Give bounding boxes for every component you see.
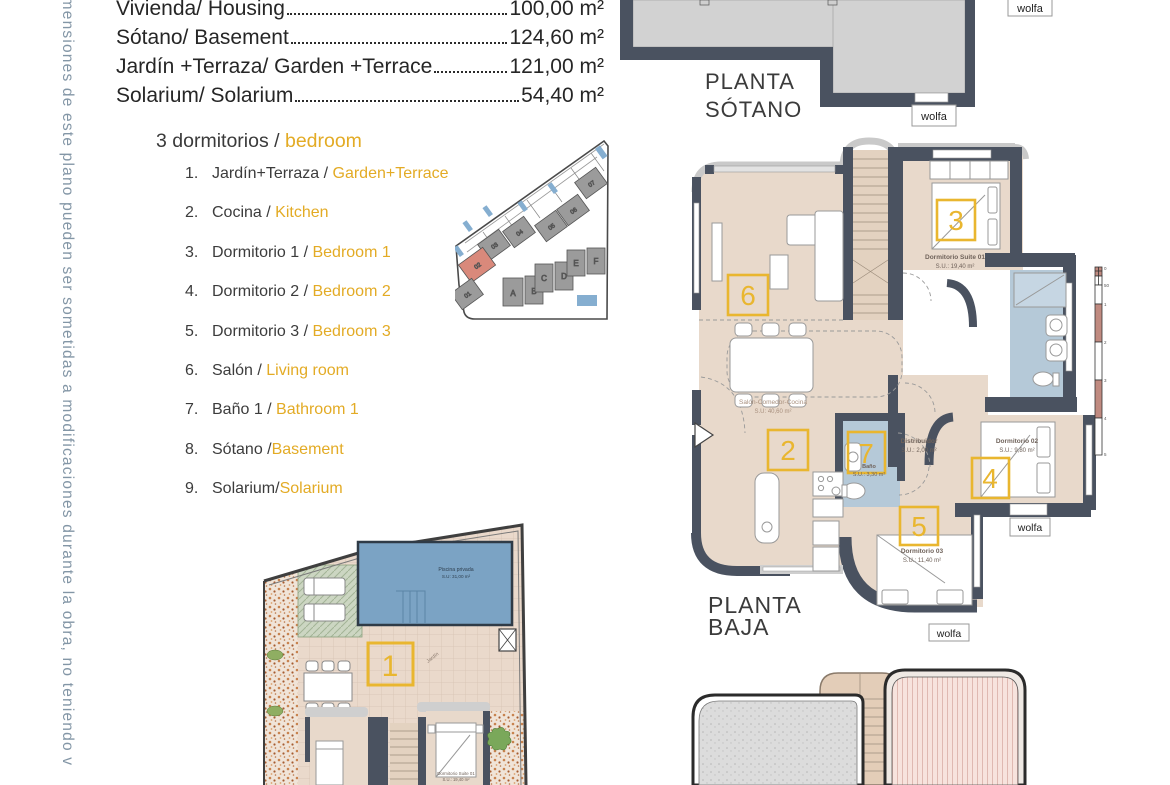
house-label: C xyxy=(541,274,547,283)
area-row: Vivienda/ Housing 100,00 m² xyxy=(116,0,604,26)
room5-name: Dormitorio 03 xyxy=(901,548,944,555)
wolfa-badge-bottom: wolfa xyxy=(929,624,969,641)
chair xyxy=(789,323,806,336)
nightstand xyxy=(428,725,435,733)
floor-plan-sheet: imensiones de este plano pueden ser some… xyxy=(0,0,1170,785)
wolfa-badge-bottom: wolfa xyxy=(912,105,956,126)
dining-table xyxy=(730,338,813,392)
legend-list: 1.Jardín+Terraza / Garden+Terrace 2.Coci… xyxy=(185,165,460,520)
legend-item: 2.Cocina / Kitchen xyxy=(185,204,460,243)
legend-item-en: Bathroom 1 xyxy=(276,401,359,418)
svg-text:wolfa: wolfa xyxy=(1017,522,1043,534)
scale-tick: 1 xyxy=(1104,302,1107,307)
room2-number: 2 xyxy=(780,435,796,466)
roof-band xyxy=(417,702,490,712)
dot-leader xyxy=(287,13,508,15)
area-label: Jardín +Terraza/ Garden +Terrace xyxy=(116,55,432,79)
legend-item-en: Garden+Terrace xyxy=(333,165,449,182)
area-row: Jardín +Terraza/ Garden +Terrace 121,00 … xyxy=(116,55,604,84)
house-label: D xyxy=(561,272,567,281)
curved-wall-suite xyxy=(947,283,973,327)
pillow xyxy=(882,590,908,604)
roof-band xyxy=(305,707,368,717)
scale-tick: 2 xyxy=(1104,340,1107,345)
dot-leader xyxy=(291,42,508,44)
wardrobe xyxy=(930,161,1008,179)
distribuidor-area: S.U.: 2,00 m² xyxy=(901,448,936,454)
distribuidor-name: Distribuidor xyxy=(901,438,938,445)
pillow xyxy=(1037,463,1050,493)
pillow xyxy=(1037,427,1050,457)
salon-name: Salón-Comedor-Cocina xyxy=(739,399,807,406)
pool-area: S.U: 31,00 m² xyxy=(442,574,471,579)
outdoor-dining-set xyxy=(304,661,352,713)
solarium-gray-terrace xyxy=(693,695,863,785)
svg-text:wolfa: wolfa xyxy=(920,111,948,123)
scale-ruler: 0 50 1 2 3 4 5 xyxy=(1095,266,1110,457)
chair xyxy=(762,323,779,336)
pillow xyxy=(937,590,963,604)
legend-item-en: Kitchen xyxy=(275,204,328,221)
room5-area: S.U.: 11,40 m² xyxy=(903,558,941,564)
svg-text:wolfa: wolfa xyxy=(1016,3,1044,15)
pillow xyxy=(316,741,343,749)
legend-item-es: Baño 1 / xyxy=(212,401,276,418)
area-label: Sótano/ Basement xyxy=(116,26,289,50)
sink xyxy=(1046,340,1067,361)
legend-item: 3.Dormitorio 1 / Bedroom 1 xyxy=(185,244,460,283)
chair xyxy=(735,323,752,336)
plan-solarium xyxy=(685,665,1030,785)
wall xyxy=(418,717,426,785)
room5-number: 5 xyxy=(911,511,927,542)
house-label: E xyxy=(573,259,578,268)
house-label: A xyxy=(510,289,516,298)
legend-item-es: Cocina / xyxy=(212,204,275,221)
area-value: 54,40 m² xyxy=(521,84,604,108)
plan-sotano-title-line2: SÓTANO xyxy=(705,97,802,122)
legend-item-es: Salón / xyxy=(212,362,266,379)
legend-heading-en: bedroom xyxy=(285,130,362,152)
legend-item-number: 8. xyxy=(185,441,212,459)
legend-item-number: 5. xyxy=(185,323,212,341)
plan-sotano: wolfa wolfa PLANTA SÓTANO xyxy=(615,0,1075,128)
room1-number: 1 xyxy=(382,650,399,683)
legend-item-number: 6. xyxy=(185,362,212,380)
plan-baja-title-line2: BAJA xyxy=(708,614,770,640)
legend-item-en: Living room xyxy=(266,362,349,379)
legend-item: 6.Salón / Living room xyxy=(185,362,460,401)
gate-marker xyxy=(499,629,516,651)
legend-item-es: Solarium/ xyxy=(212,480,280,497)
legend-item-number: 4. xyxy=(185,283,212,301)
room7-area: S.U.: 3,30 m² xyxy=(853,472,886,478)
room4-number: 4 xyxy=(982,463,998,494)
sink xyxy=(1046,315,1067,336)
area-label: Vivienda/ Housing xyxy=(116,0,285,21)
svg-text:wolfa: wolfa xyxy=(936,628,962,640)
plan-sotano-title-line1: PLANTA xyxy=(705,69,795,94)
room3-area: S.U.: 19,40 m² xyxy=(936,264,975,270)
toilet-icon xyxy=(1033,372,1053,386)
area-value: 121,00 m² xyxy=(509,55,604,79)
wall xyxy=(368,717,388,785)
pillow xyxy=(988,219,997,245)
legend-item-en: Basement xyxy=(272,441,344,458)
legend-item-number: 2. xyxy=(185,204,212,222)
nightstand xyxy=(476,725,483,733)
scale-tick: 5 xyxy=(1104,452,1107,457)
column xyxy=(828,0,837,5)
legend-item: 4.Dormitorio 2 / Bedroom 2 xyxy=(185,283,460,322)
area-row: Sótano/ Basement 124,60 m² xyxy=(116,26,604,55)
coffee-table xyxy=(770,255,788,289)
room4-name: Dormitorio 02 xyxy=(996,438,1039,445)
legend-item-number: 3. xyxy=(185,244,212,262)
solarium-pink-deck xyxy=(885,670,1025,785)
kitchen-unit xyxy=(813,521,839,545)
scale-tick: 50 xyxy=(1104,283,1110,288)
legend-item-es: Dormitorio 3 / xyxy=(212,323,312,340)
legend-item-en: Solarium xyxy=(280,480,343,497)
area-label: Solarium/ Solarium xyxy=(116,84,293,108)
area-value: 124,60 m² xyxy=(509,26,604,50)
house-label: F xyxy=(594,257,599,266)
stairs-floor xyxy=(853,150,888,320)
salon-area: S.U: 40,60 m² xyxy=(754,409,791,415)
room7-name: Baño xyxy=(862,464,876,470)
pool: Piscina privada S.U: 31,00 m² xyxy=(358,542,512,625)
legend-heading: 3 dormitorios / bedroom xyxy=(156,130,362,153)
wolfa-badge-top: wolfa xyxy=(1008,0,1052,16)
plan-garden: Piscina privada S.U: 31,00 m² 1 Jardín xyxy=(250,515,540,785)
legend-item: 5.Dormitorio 3 / Bedroom 3 xyxy=(185,323,460,362)
dot-leader xyxy=(434,71,507,73)
legend-item-en: Bedroom 2 xyxy=(312,283,390,300)
legend-item-number: 9. xyxy=(185,480,212,498)
suite-name: Dormitorio Suite 01 xyxy=(437,771,475,776)
kitchen-counter xyxy=(813,472,843,496)
legend-item-es: Dormitorio 2 / xyxy=(212,283,312,300)
basement-opening xyxy=(915,93,948,102)
legend-item-en: Bedroom 1 xyxy=(312,244,390,261)
room3-name: Dormitorio Suite 01 xyxy=(925,254,985,261)
suite-area: S.U.: 19,40 m² xyxy=(443,777,471,782)
pillow xyxy=(988,187,997,213)
pillow xyxy=(436,723,476,732)
legend-item-number: 1. xyxy=(185,165,212,183)
scale-tick: 4 xyxy=(1104,416,1107,421)
legend-item-es: Dormitorio 1 / xyxy=(212,244,312,261)
sofa-chaise xyxy=(815,211,843,301)
legend-item-es: Sótano / xyxy=(212,441,272,458)
basement-floor-left xyxy=(633,0,835,47)
legend-item: 8.Sótano /Basement xyxy=(185,441,460,480)
lounger-deck xyxy=(298,565,362,637)
stairs xyxy=(390,723,418,785)
wall xyxy=(305,717,310,762)
areas-summary: Vivienda/ Housing 100,00 m² Sótano/ Base… xyxy=(116,0,604,113)
dot-leader xyxy=(295,100,519,102)
legend-item: 9.Solarium/Solarium xyxy=(185,480,460,519)
column xyxy=(700,0,709,5)
tv-unit xyxy=(712,223,722,281)
kitchen-unit xyxy=(813,547,839,571)
legend-item-es: Jardín+Terraza / xyxy=(212,165,333,182)
legend-item-number: 7. xyxy=(185,401,212,419)
gravel-strip-left xyxy=(264,555,298,785)
kitchen-counter xyxy=(813,499,843,517)
area-row: Solarium/ Solarium 54,40 m² xyxy=(116,84,604,113)
legend-heading-es: 3 dormitorios / xyxy=(156,130,285,152)
scale-tick: 0 xyxy=(1104,266,1107,271)
legend-item: 1.Jardín+Terraza / Garden+Terrace xyxy=(185,165,460,204)
site-plan-map: 07 06 05 04 03 02 01 A B C D E F xyxy=(455,140,650,325)
basement-floor-right xyxy=(833,0,965,93)
wolfa-badge-right: wolfa xyxy=(1010,518,1050,536)
legend-item-en: Bedroom 3 xyxy=(312,323,390,340)
room6-number: 6 xyxy=(740,280,756,311)
plan-baja: 6 3 2 7 4 5 Dormitorio Suite 01 S.U.: 19… xyxy=(685,135,1110,650)
room4-area: S.U.: 9,80 m² xyxy=(999,448,1034,454)
area-value: 100,00 m² xyxy=(509,0,604,21)
wall xyxy=(483,711,490,785)
scale-tick: 3 xyxy=(1104,378,1107,383)
legend-item: 7.Baño 1 / Bathroom 1 xyxy=(185,401,460,440)
pool-name: Piscina privada xyxy=(438,567,473,573)
room3-number: 3 xyxy=(948,205,964,236)
side-note-vertical-text: imensiones de este plano pueden ser some… xyxy=(58,0,76,766)
